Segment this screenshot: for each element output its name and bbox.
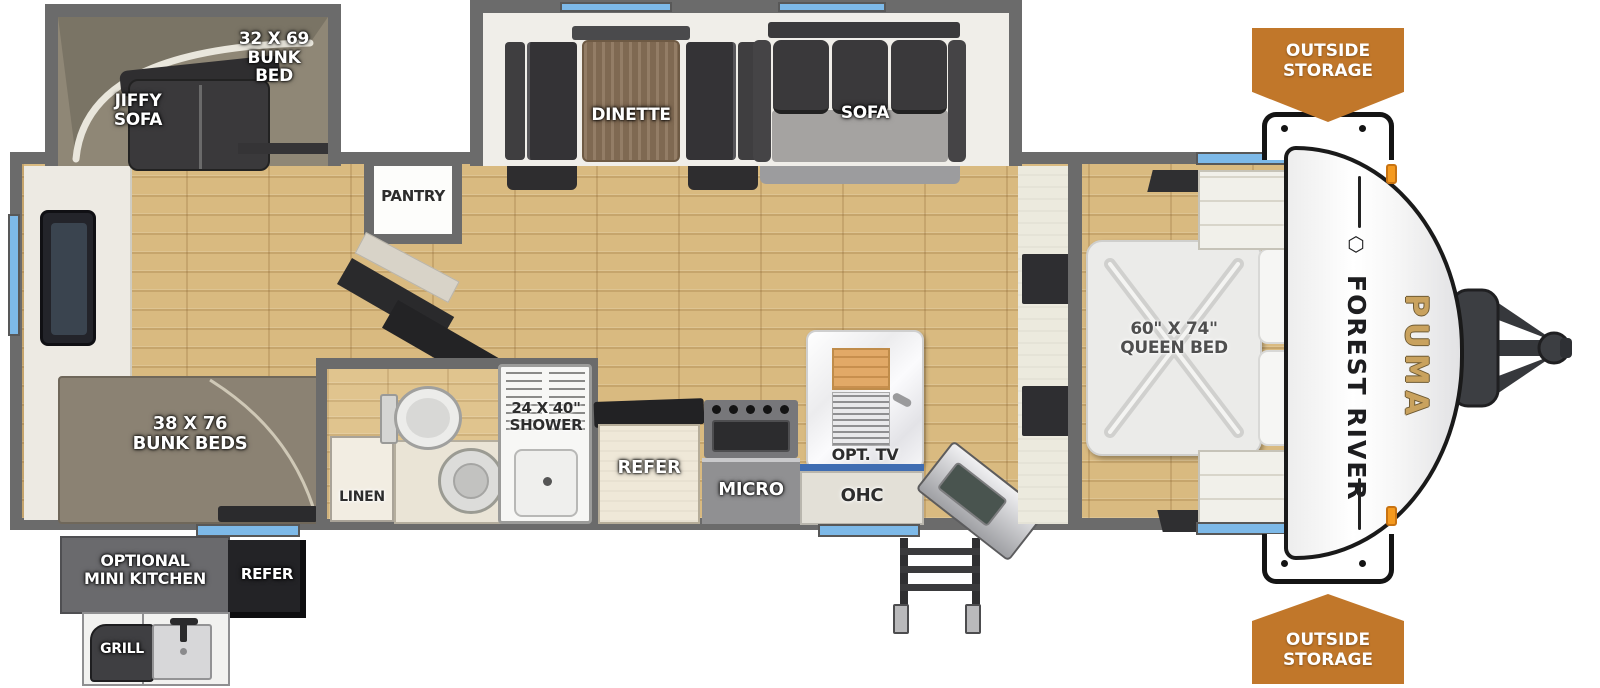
sofa-back-bar [768, 22, 960, 38]
bedroom-wall [1068, 164, 1082, 526]
sofa-arm-right [948, 40, 966, 162]
shower [498, 364, 592, 524]
sofa-cushion-1 [773, 40, 829, 114]
jiffy-sofa-label: JIFFY SOFA [88, 92, 188, 129]
range-knob-1 [712, 405, 721, 414]
cap-marker-light-top [1386, 164, 1397, 184]
outside-sink-drain [180, 648, 187, 655]
linen-cabinet [330, 436, 394, 522]
shower-label: 24 X 40" SHOWER [500, 400, 592, 433]
bath-sink [438, 448, 504, 514]
counter-blue-trim [800, 464, 924, 471]
shower-drain [543, 477, 552, 486]
sofa-window [778, 2, 886, 12]
storage-rivet [1281, 560, 1288, 567]
dinette-bench-front-left [507, 166, 577, 190]
outside-refer-label: REFER [228, 566, 306, 583]
range-knob-5 [780, 405, 789, 414]
jiffy-sofa-cushion-split [199, 85, 202, 169]
sofa-label: SOFA [810, 104, 920, 123]
linen-label: LINEN [328, 490, 396, 505]
outside-sink-faucet-bar [170, 618, 198, 625]
shower-pan [514, 449, 578, 517]
kitchen-window [818, 524, 920, 537]
dinette-label: DINETTE [572, 106, 690, 125]
range-knob-2 [729, 405, 738, 414]
entry-step-foot-right [965, 604, 981, 634]
outside-storage-banner-bottom: OUTSIDE STORAGE [1252, 594, 1404, 684]
opt-tv-label: OPT. TV [806, 446, 924, 464]
dinette-bench-left [527, 42, 577, 160]
sofa-arm-left [753, 40, 771, 162]
storage-rivet [1281, 125, 1288, 132]
bunk-bed-32-label: 32 X 69 BUNK BED [218, 30, 330, 86]
bath-sink-bowl [453, 463, 489, 499]
sink-cover [832, 392, 890, 446]
range-knob-4 [763, 405, 772, 414]
cap-swoosh-top [1358, 176, 1361, 228]
dinette-window [560, 2, 672, 12]
front-cap [1284, 146, 1464, 560]
micro-label: MICRO [702, 480, 800, 500]
entertainment-shelf-top [1022, 254, 1070, 304]
entertainment-shelf-bottom [1022, 386, 1070, 436]
bunk-bench-bar [238, 143, 328, 154]
sofa-front [760, 166, 960, 184]
floorplan-canvas: 38 X 76 BUNK BEDS 32 X 69 BUNK BED JIFFY… [0, 0, 1600, 688]
bunk-beds-label: 38 X 76 BUNK BEDS [90, 414, 290, 454]
brand-wordmark: FOREST RIVER [1342, 258, 1371, 518]
hitch [1452, 288, 1572, 408]
outside-storage-bottom-label: OUTSIDE STORAGE [1283, 631, 1373, 670]
outside-sink [152, 624, 212, 680]
entry-step-bar-2 [900, 566, 980, 573]
storage-rivet [1359, 560, 1366, 567]
mini-kitchen-label: OPTIONAL MINI KITCHEN [60, 552, 230, 587]
rear-window [8, 214, 20, 336]
range-knob-3 [746, 405, 755, 414]
faucet [891, 392, 912, 408]
bunk-ladder-bar [218, 506, 318, 522]
dinette-table [582, 40, 680, 162]
dinette-table-ledge [572, 26, 690, 40]
toilet-bowl [394, 386, 462, 450]
dinette-bench-front-right [688, 166, 758, 190]
storage-rivet [1359, 125, 1366, 132]
cap-swoosh-bottom [1358, 478, 1361, 530]
ohc-label: OHC [800, 486, 924, 506]
refer-label: REFER [598, 458, 700, 478]
toilet-bowl-inner [406, 398, 450, 438]
dinette-bench-left-outer [505, 42, 525, 160]
outside-storage-top-label: OUTSIDE STORAGE [1283, 42, 1373, 81]
model-wordmark: PUMA [1398, 272, 1434, 442]
entry-step-bar-1 [900, 548, 980, 555]
queen-bed-label: 60" X 74" QUEEN BED [1086, 320, 1262, 357]
rear-tv-screen [51, 223, 87, 335]
sofa-cushion-3 [891, 40, 947, 114]
cap-marker-light-bottom [1386, 506, 1397, 526]
range-cooktop [704, 400, 798, 458]
grill-label: GRILL [90, 642, 154, 657]
pantry-label: PANTRY [368, 188, 458, 205]
entry-step-bar-3 [900, 584, 980, 591]
entertainment-center [1018, 166, 1070, 524]
dinette-bench-right [686, 42, 736, 160]
entry-step-foot-left [893, 604, 909, 634]
forest-river-logo-icon: ⬡ [1344, 232, 1368, 256]
range-oven-window [712, 420, 790, 452]
outside-storage-banner-top: OUTSIDE STORAGE [1252, 28, 1404, 122]
cutting-board [832, 348, 890, 390]
rear-tv [40, 210, 96, 346]
